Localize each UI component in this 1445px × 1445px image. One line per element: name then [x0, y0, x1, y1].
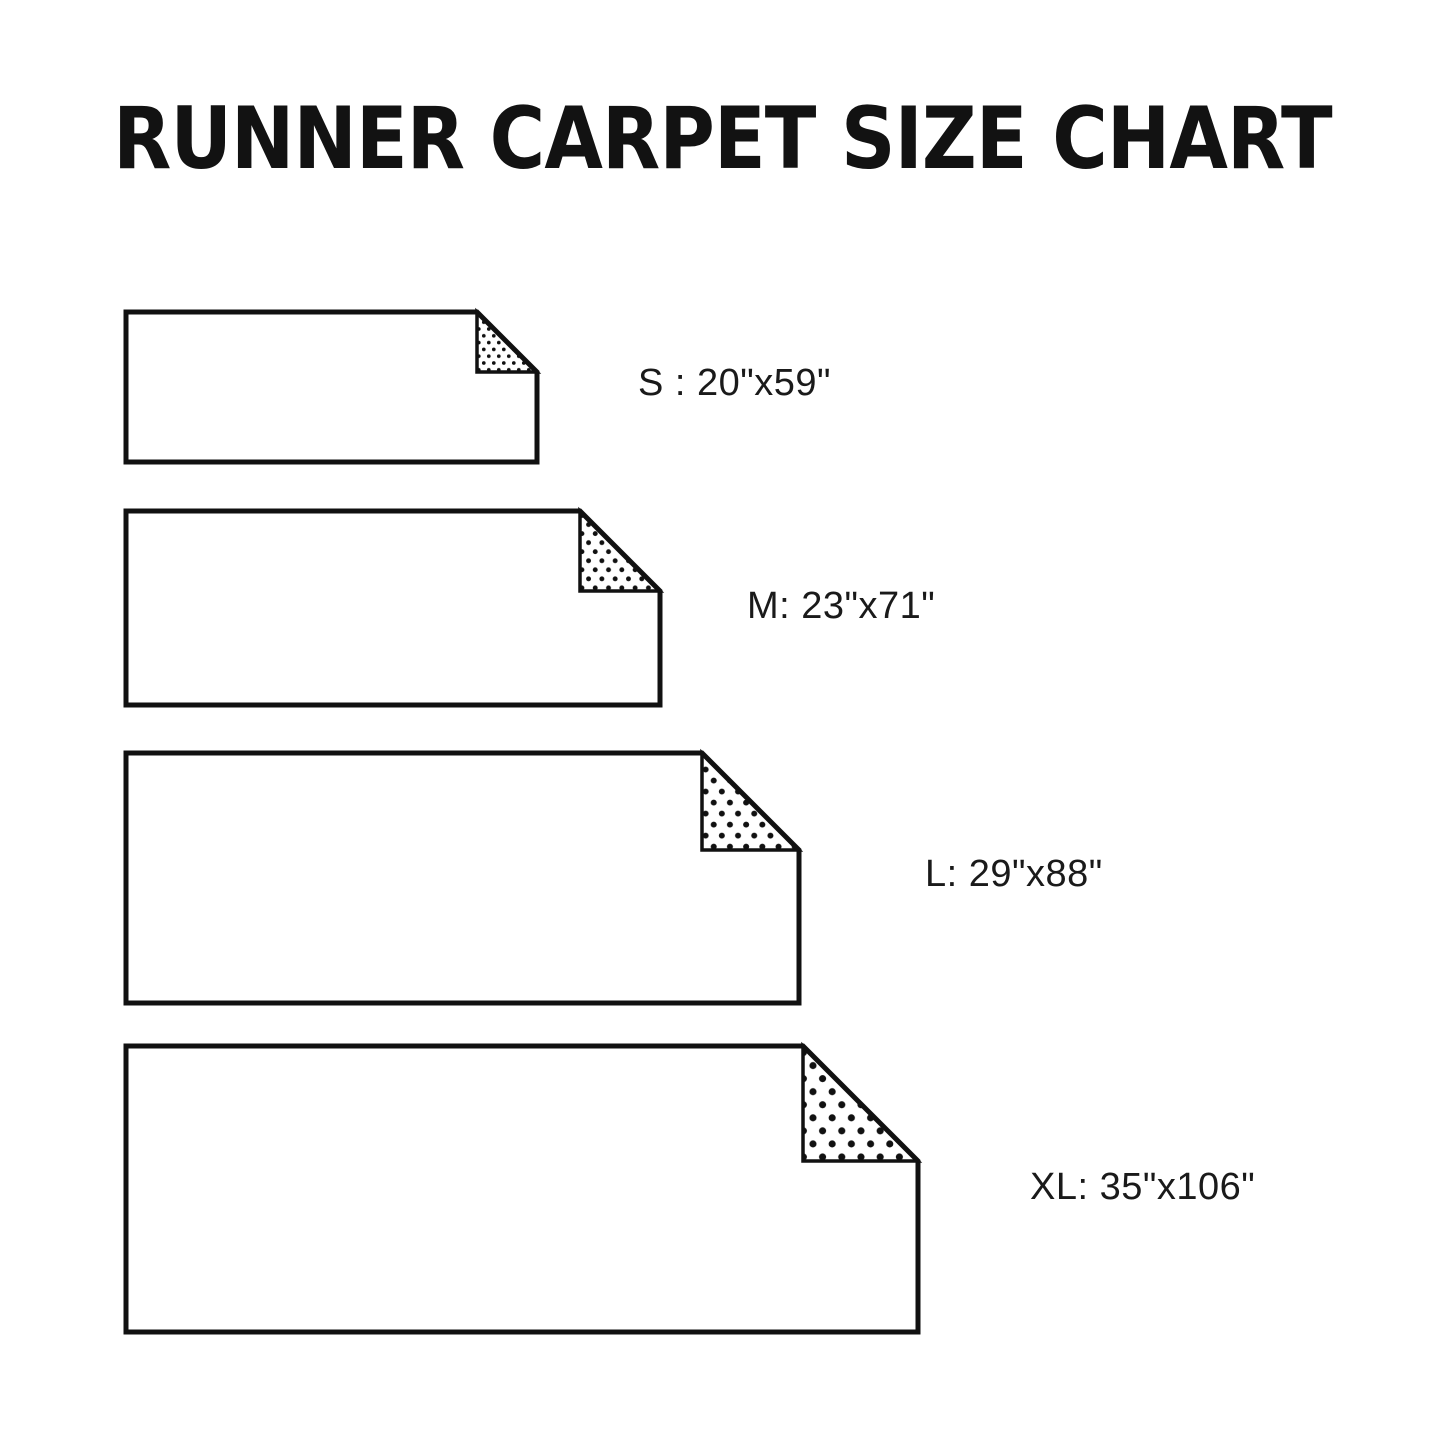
page-title-text: RUNNER CARPET SIZE CHART [113, 96, 1332, 182]
folded-corner-m [580, 511, 660, 591]
carpet-diagram-l [126, 753, 799, 1003]
runner-carpet-size-chart: RUNNER CARPET SIZE CHART S : 20"x59" M: … [0, 0, 1445, 1445]
carpet-outline-l [126, 753, 799, 1003]
carpet-diagram-m [126, 511, 660, 705]
carpet-outline-xl [126, 1046, 918, 1332]
carpet-diagram-xl [126, 1046, 918, 1332]
size-label-l: L: 29"x88" [925, 850, 1103, 898]
size-label-m: M: 23"x71" [747, 582, 935, 630]
folded-corner-s [477, 312, 537, 372]
size-label-s: S : 20"x59" [638, 359, 831, 407]
size-label-xl: XL: 35"x106" [1030, 1163, 1255, 1211]
folded-corner-xl [803, 1046, 918, 1161]
folded-corner-l [702, 753, 799, 850]
carpet-diagram-s [126, 312, 537, 462]
page-title: RUNNER CARPET SIZE CHART [0, 96, 1445, 182]
